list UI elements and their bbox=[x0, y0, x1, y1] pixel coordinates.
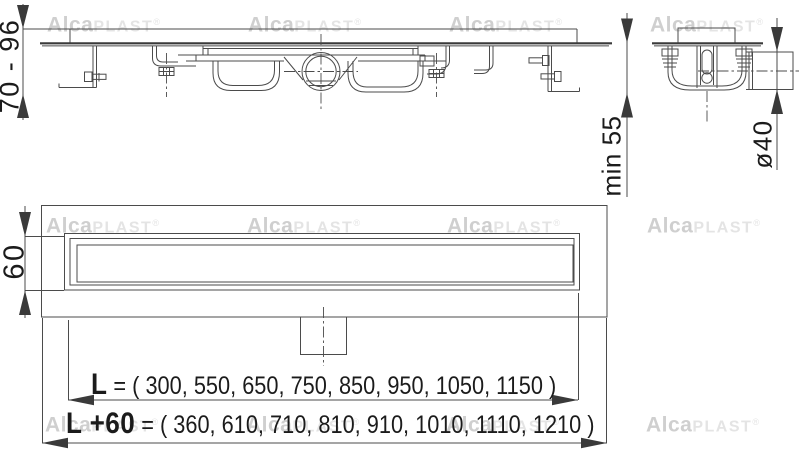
length-values-row: L = ( 300, 550, 650, 750, 850, 950, 1050… bbox=[91, 368, 556, 402]
channel-width-label: 60 bbox=[0, 242, 32, 279]
length-label: L bbox=[91, 368, 107, 401]
min-depth-label: min 55 bbox=[597, 115, 628, 196]
technical-diagram: AlcaPLAST®AlcaPLAST®AlcaPLAST®AlcaPLAST®… bbox=[0, 0, 800, 449]
side-view bbox=[23, 29, 612, 110]
total-length-label: L +60 bbox=[66, 407, 135, 440]
grate-slots bbox=[77, 245, 573, 282]
height-range-label: 70 - 96 bbox=[0, 19, 26, 114]
pipe-diameter-label: ø40 bbox=[748, 119, 779, 168]
top-view bbox=[42, 206, 608, 367]
total-length-values: = ( 360, 610, 710, 810, 910, 1010, 1110,… bbox=[141, 411, 594, 439]
length-values: = ( 300, 550, 650, 750, 850, 950, 1050, … bbox=[113, 372, 556, 400]
total-length-values-row: L +60 = ( 360, 610, 710, 810, 910, 1010,… bbox=[66, 407, 595, 441]
